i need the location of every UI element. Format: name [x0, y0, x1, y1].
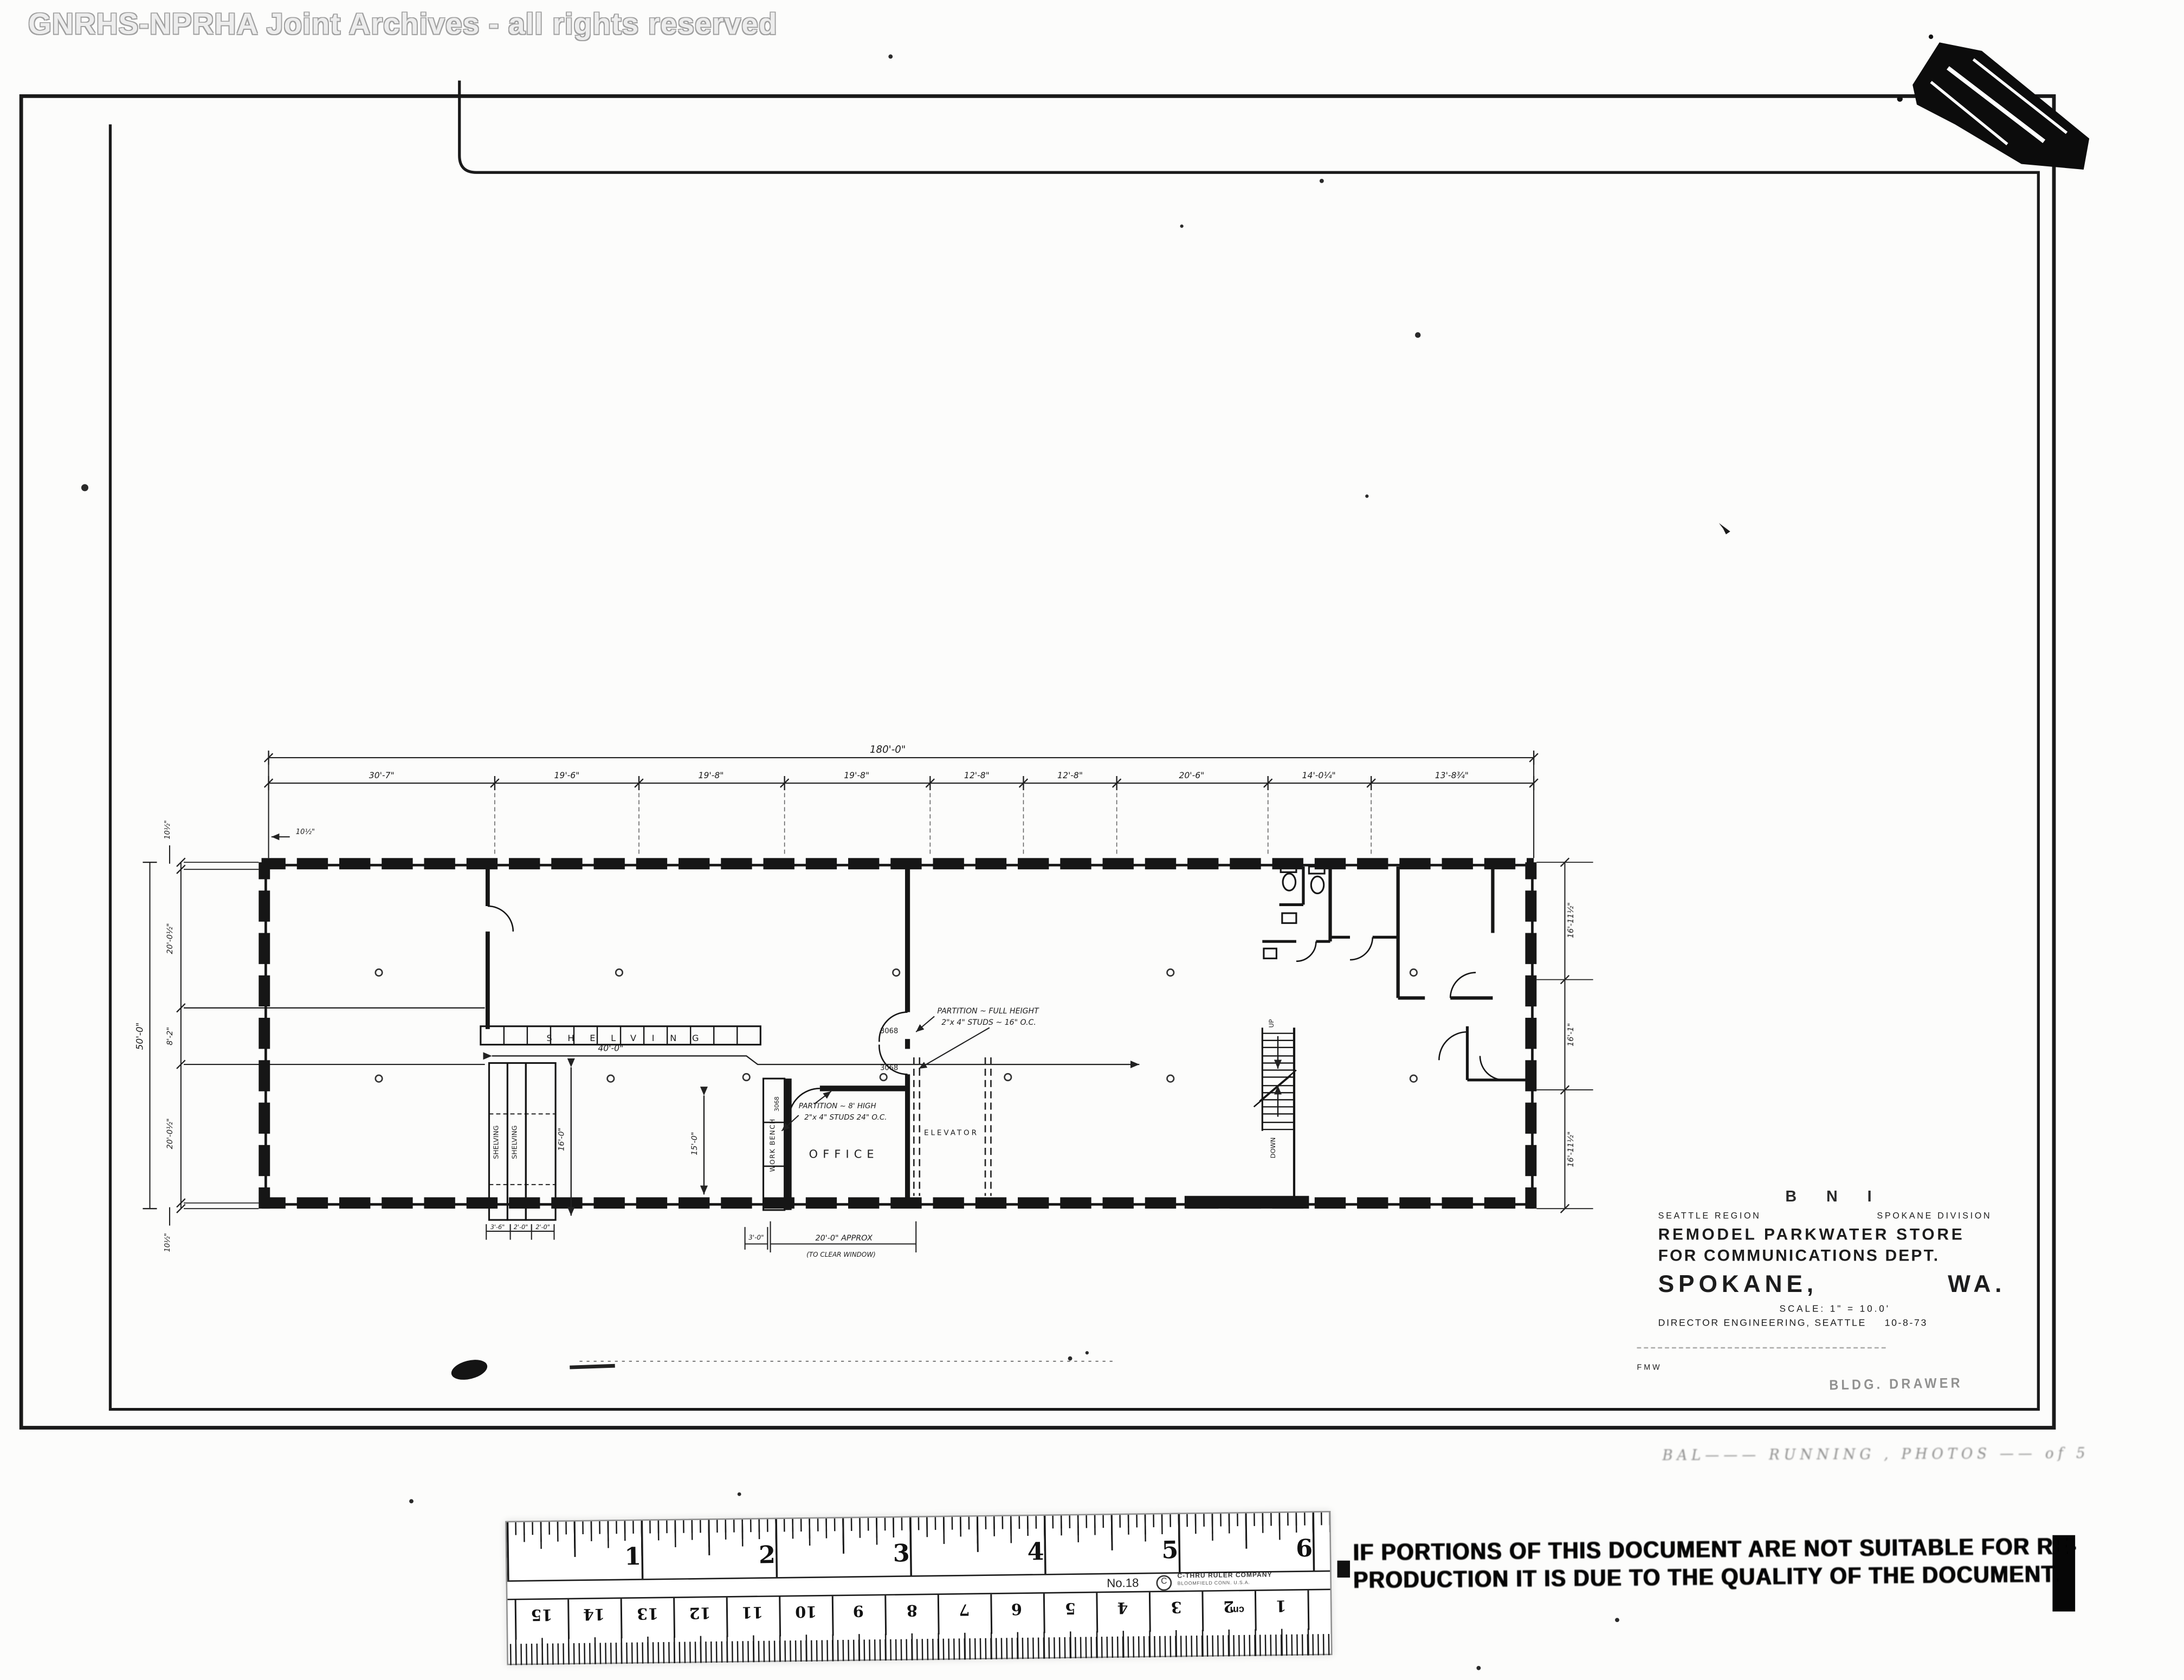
dim-left-middle: 8'-2" [166, 1027, 175, 1045]
dim-left-lower: 20'-0½" [166, 1118, 175, 1149]
drawing-date: 10-8-73 [1885, 1319, 1928, 1329]
dim-door-width: 3'-0" [748, 1234, 764, 1242]
title-block: B N I SEATTLE REGION SPOKANE DIVISION RE… [1658, 1189, 2012, 1329]
drafter-initials: FMW [1637, 1364, 1662, 1373]
drawer-note: BLDG. DRAWER [1829, 1375, 1963, 1393]
dimension-labels-right: 16'-11½" 16'-1" 16'-11½" [1567, 902, 1575, 1167]
label-office: OFFICE [809, 1147, 879, 1160]
dim-shelf-depth: 16'-0" [558, 1128, 566, 1151]
cthru-logo-icon: C [1156, 1575, 1172, 1591]
dim-left-overall: 50'-0" [134, 1023, 145, 1050]
ruler-brand-sub: BLOOMFIELD CONN. U.S.A. [1178, 1579, 1272, 1586]
inch-label-6: 6 [1293, 1535, 1315, 1564]
cm-label-13: 13 [633, 1604, 662, 1623]
ruler-model-number: No.18 [1107, 1575, 1139, 1590]
faint-handwriting: BAL——— RUNNING , PHOTOS —— of 5 [1662, 1446, 2089, 1464]
cm-label-1: 1 [1267, 1596, 1296, 1615]
title-block-rule [1637, 1347, 1886, 1349]
label-stairs-up: UP [1268, 1019, 1275, 1028]
dim-left-offset-top: 10½" [164, 820, 172, 839]
dim-right-middle: 16'-1" [1567, 1023, 1575, 1046]
dim-window-note: (TO CLEAR WINDOW) [806, 1251, 876, 1258]
note-partition-full-2: 2"x 4" STUDS ~ 16" O.C. [941, 1018, 1036, 1027]
cm-label-14: 14 [580, 1605, 609, 1624]
partition-notes: PARTITION ~ FULL HEIGHT 2"x 4" STUDS ~ 1… [781, 1007, 1039, 1130]
label-shelving-col1: SHELVING [492, 1125, 500, 1159]
label-work-bench: WORK BENCH [768, 1118, 776, 1172]
scale-ruler: 1 2 3 4 5 6 No.18 C C-THRU RULER COMPANY… [505, 1511, 1332, 1665]
division-label: SPOKANE DIVISION [1877, 1211, 1992, 1221]
dim-office-width: 15'-0" [690, 1132, 699, 1155]
label-shelving-col2: SHELVING [510, 1125, 518, 1159]
drawing-title-line2: FOR COMMUNICATIONS DEPT. [1658, 1248, 2012, 1265]
inch-label-2: 2 [755, 1542, 778, 1571]
approval-label: DIRECTOR ENGINEERING, SEATTLE [1658, 1319, 1866, 1329]
dim-seg-3: 19'-8" [699, 770, 724, 780]
inch-label-3: 3 [890, 1540, 913, 1569]
region-label: SEATTLE REGION [1658, 1211, 1761, 1221]
ruler-brand: C-THRU RULER COMPANY [1177, 1573, 1272, 1580]
cm-label-10: 10 [791, 1602, 820, 1621]
dim-shelf-w3: 2'-0" [535, 1224, 550, 1231]
cm-label-5: 5 [1056, 1599, 1084, 1618]
dimensions-top [264, 751, 1538, 858]
cm-label-11: 11 [739, 1603, 767, 1621]
cm-label-9: 9 [844, 1601, 873, 1620]
room-labels: SHELVING SHELVING SHELVING WORK BENCH OF… [492, 1019, 1276, 1172]
label-stairs-down: DOWN [1269, 1138, 1277, 1159]
inch-label-4: 4 [1024, 1539, 1047, 1567]
dim-seg-2: 19'-6" [554, 770, 579, 780]
dim-window: 20'-0" APPROX [816, 1234, 874, 1243]
dim-shelf-w1: 3'-6" [490, 1224, 505, 1231]
stairs [1254, 1028, 1296, 1199]
note-partition-low-2: 2"x 4" STUDS 24" O.C. [804, 1113, 887, 1122]
note-partition-low-1: PARTITION ~ 8' HIGH [799, 1102, 876, 1110]
dim-right-bottom: 16'-11½" [1567, 1132, 1575, 1167]
dimensions-left [143, 845, 259, 1226]
label-shelving-band: SHELVING [546, 1033, 714, 1043]
cm-label-4: 4 [1108, 1598, 1137, 1617]
dimensions-right [1536, 858, 1593, 1213]
city-label: SPOKANE, [1658, 1271, 1818, 1299]
dim-seg-9: 13'-8¾" [1435, 770, 1469, 780]
cm-label-6: 6 [1003, 1599, 1031, 1618]
door-tag-1: 3068 [880, 1028, 898, 1036]
dim-offset-topleft: 10½" [296, 828, 315, 836]
dim-seg-7: 20'-6" [1179, 770, 1204, 780]
dim-seg-6: 12'-8" [1057, 770, 1083, 780]
elevator-shaft [914, 1057, 991, 1196]
inch-label-1: 1 [622, 1543, 644, 1572]
dimension-labels-left: 50'-0" 10½" 20'-0½" 8'-2" 20'-0½" 10½" [134, 820, 175, 1252]
door-tag-2: 3068 [880, 1064, 898, 1072]
label-elevator: ELEVATOR [924, 1129, 979, 1138]
dim-seg-5: 12'-8" [964, 770, 990, 780]
scale-note: SCALE: 1" = 10.0' [1658, 1305, 2012, 1315]
drawing-title-line1: REMODEL PARKWATER STORE [1658, 1227, 2012, 1244]
cm-label-8: 8 [897, 1601, 926, 1620]
dim-seg-8: 14'-0¼" [1302, 770, 1336, 780]
ruler-cm-scale: 15 14 13 12 11 10 9 8 7 6 5 4 3 2 1 cm [508, 1589, 1331, 1665]
dim-left-offset-bottom: 10½" [164, 1233, 172, 1252]
railroad-mark: B N I [1658, 1189, 2012, 1206]
dim-seg-1: 30'-7" [369, 770, 395, 780]
door-tag-3: 3068 [773, 1096, 780, 1112]
dim-shelf-w2: 2'-0" [514, 1224, 528, 1231]
cm-label-7: 7 [950, 1600, 979, 1619]
inch-label-5: 5 [1159, 1537, 1181, 1566]
restrooms-and-rooms [1262, 865, 1527, 1080]
dim-right-top: 16'-11½" [1567, 902, 1575, 938]
state-label: WA. [1948, 1271, 2006, 1299]
dim-overall: 180'-0" [870, 744, 906, 755]
cm-label-12: 12 [686, 1603, 714, 1622]
reproduction-quality-stamp: IF PORTIONS OF THIS DOCUMENT ARE NOT SUI… [1353, 1534, 2077, 1594]
drawing-sheet-svg: 180'-0" 30'-7" 19'-6" 19'-8" 19'-8" 12'-… [0, 0, 2184, 1679]
cm-label-3: 3 [1161, 1598, 1190, 1617]
dim-shelving-run: 40'-0" [598, 1043, 623, 1053]
cm-label-15: 15 [527, 1605, 555, 1624]
cm-unit-label: cm [1226, 1604, 1249, 1614]
interior-walls [184, 867, 908, 1199]
dim-left-upper: 20'-0½" [166, 923, 175, 954]
note-partition-full-1: PARTITION ~ FULL HEIGHT [937, 1007, 1039, 1016]
torn-corner-mark [1897, 35, 2089, 170]
scanned-blueprint-page: GNRHS-NPRHA Joint Archives - all rights … [0, 0, 2184, 1679]
dim-seg-4: 19'-8" [844, 770, 869, 780]
